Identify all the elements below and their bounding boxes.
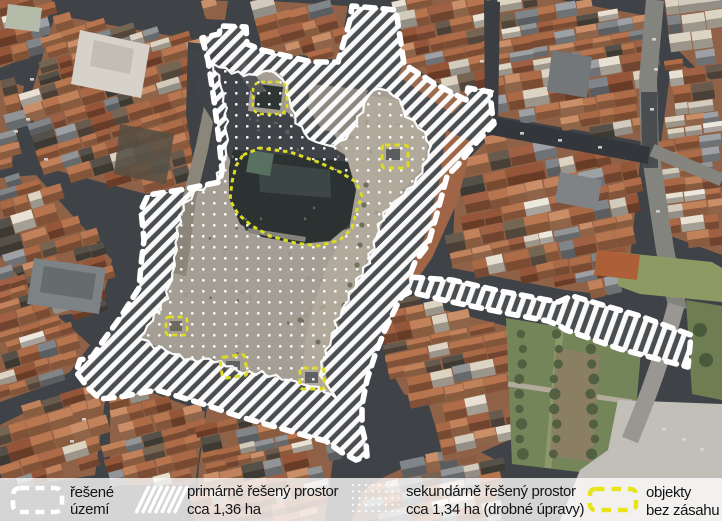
svg-text:bez zásahu: bez zásahu: [646, 502, 719, 519]
svg-text:řešené: řešené: [70, 484, 114, 501]
svg-text:primárně řešený prostor: primárně řešený prostor: [187, 483, 339, 500]
svg-text:cca 1,36 ha: cca 1,36 ha: [187, 501, 262, 518]
svg-text:sekundárně řešený prostor: sekundárně řešený prostor: [406, 483, 576, 500]
svg-text:území: území: [70, 501, 110, 518]
svg-text:cca 1,34 ha (drobné úpravy): cca 1,34 ha (drobné úpravy): [406, 501, 585, 518]
svg-text:objekty: objekty: [646, 484, 692, 501]
